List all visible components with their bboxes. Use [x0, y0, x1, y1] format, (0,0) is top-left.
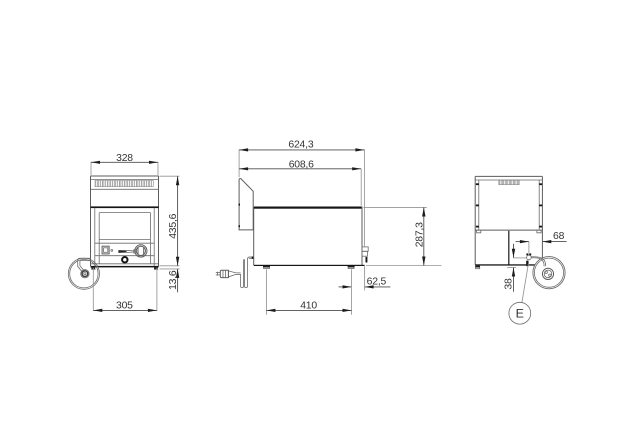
svg-text:13,6: 13,6	[168, 270, 179, 290]
svg-text:E: E	[516, 307, 524, 321]
svg-text:328: 328	[116, 153, 133, 164]
svg-text:287,3: 287,3	[414, 222, 425, 247]
svg-text:410: 410	[300, 301, 317, 312]
svg-text:62,5: 62,5	[367, 276, 387, 287]
svg-text:38: 38	[504, 278, 515, 290]
svg-text:68: 68	[553, 231, 565, 242]
svg-text:435,6: 435,6	[168, 213, 179, 238]
svg-text:624,3: 624,3	[288, 140, 313, 151]
svg-text:305: 305	[116, 301, 133, 312]
svg-text:608,6: 608,6	[289, 159, 314, 170]
